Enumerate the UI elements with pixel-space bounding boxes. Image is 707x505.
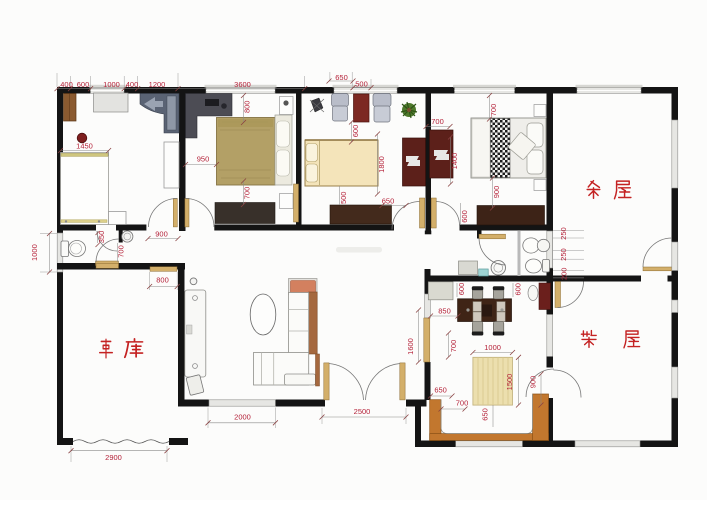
svg-text:2000: 2000 <box>234 413 251 422</box>
svg-text:500: 500 <box>355 80 368 89</box>
svg-text:900: 900 <box>492 186 501 199</box>
svg-text:700: 700 <box>489 104 498 117</box>
svg-text:1800: 1800 <box>377 156 386 173</box>
svg-text:200: 200 <box>560 268 569 281</box>
svg-text:1000: 1000 <box>103 80 120 89</box>
svg-text:1000: 1000 <box>484 343 501 352</box>
svg-text:400: 400 <box>60 80 73 89</box>
svg-text:600: 600 <box>351 125 360 138</box>
svg-text:700: 700 <box>456 399 469 408</box>
svg-text:700: 700 <box>449 340 458 353</box>
svg-text:250: 250 <box>559 227 568 240</box>
svg-text:350: 350 <box>97 231 106 244</box>
svg-text:1500: 1500 <box>505 374 514 391</box>
svg-text:700: 700 <box>117 245 126 258</box>
svg-text:600: 600 <box>77 80 90 89</box>
svg-text:1600: 1600 <box>406 338 415 355</box>
svg-text:650: 650 <box>382 196 395 205</box>
svg-text:3600: 3600 <box>234 80 251 89</box>
svg-text:950: 950 <box>197 155 210 164</box>
svg-text:900: 900 <box>155 230 168 239</box>
svg-text:1200: 1200 <box>149 80 166 89</box>
svg-text:600: 600 <box>460 210 469 223</box>
svg-text:800: 800 <box>243 101 252 114</box>
svg-text:700: 700 <box>431 117 444 126</box>
svg-text:1000: 1000 <box>30 244 39 261</box>
svg-text:400: 400 <box>126 80 139 89</box>
svg-text:900: 900 <box>528 376 537 389</box>
svg-text:600: 600 <box>457 283 466 296</box>
svg-text:2900: 2900 <box>105 453 122 462</box>
svg-text:1400: 1400 <box>450 153 459 170</box>
svg-text:650: 650 <box>335 73 348 82</box>
svg-text:1450: 1450 <box>76 142 93 151</box>
svg-text:250: 250 <box>559 248 568 261</box>
svg-text:2500: 2500 <box>354 407 371 416</box>
svg-text:600: 600 <box>514 283 523 296</box>
svg-text:800: 800 <box>156 276 169 285</box>
svg-text:650: 650 <box>481 408 490 421</box>
svg-text:650: 650 <box>434 385 447 394</box>
svg-text:700: 700 <box>243 187 252 200</box>
svg-text:850: 850 <box>438 307 451 316</box>
svg-text:500: 500 <box>339 192 348 205</box>
